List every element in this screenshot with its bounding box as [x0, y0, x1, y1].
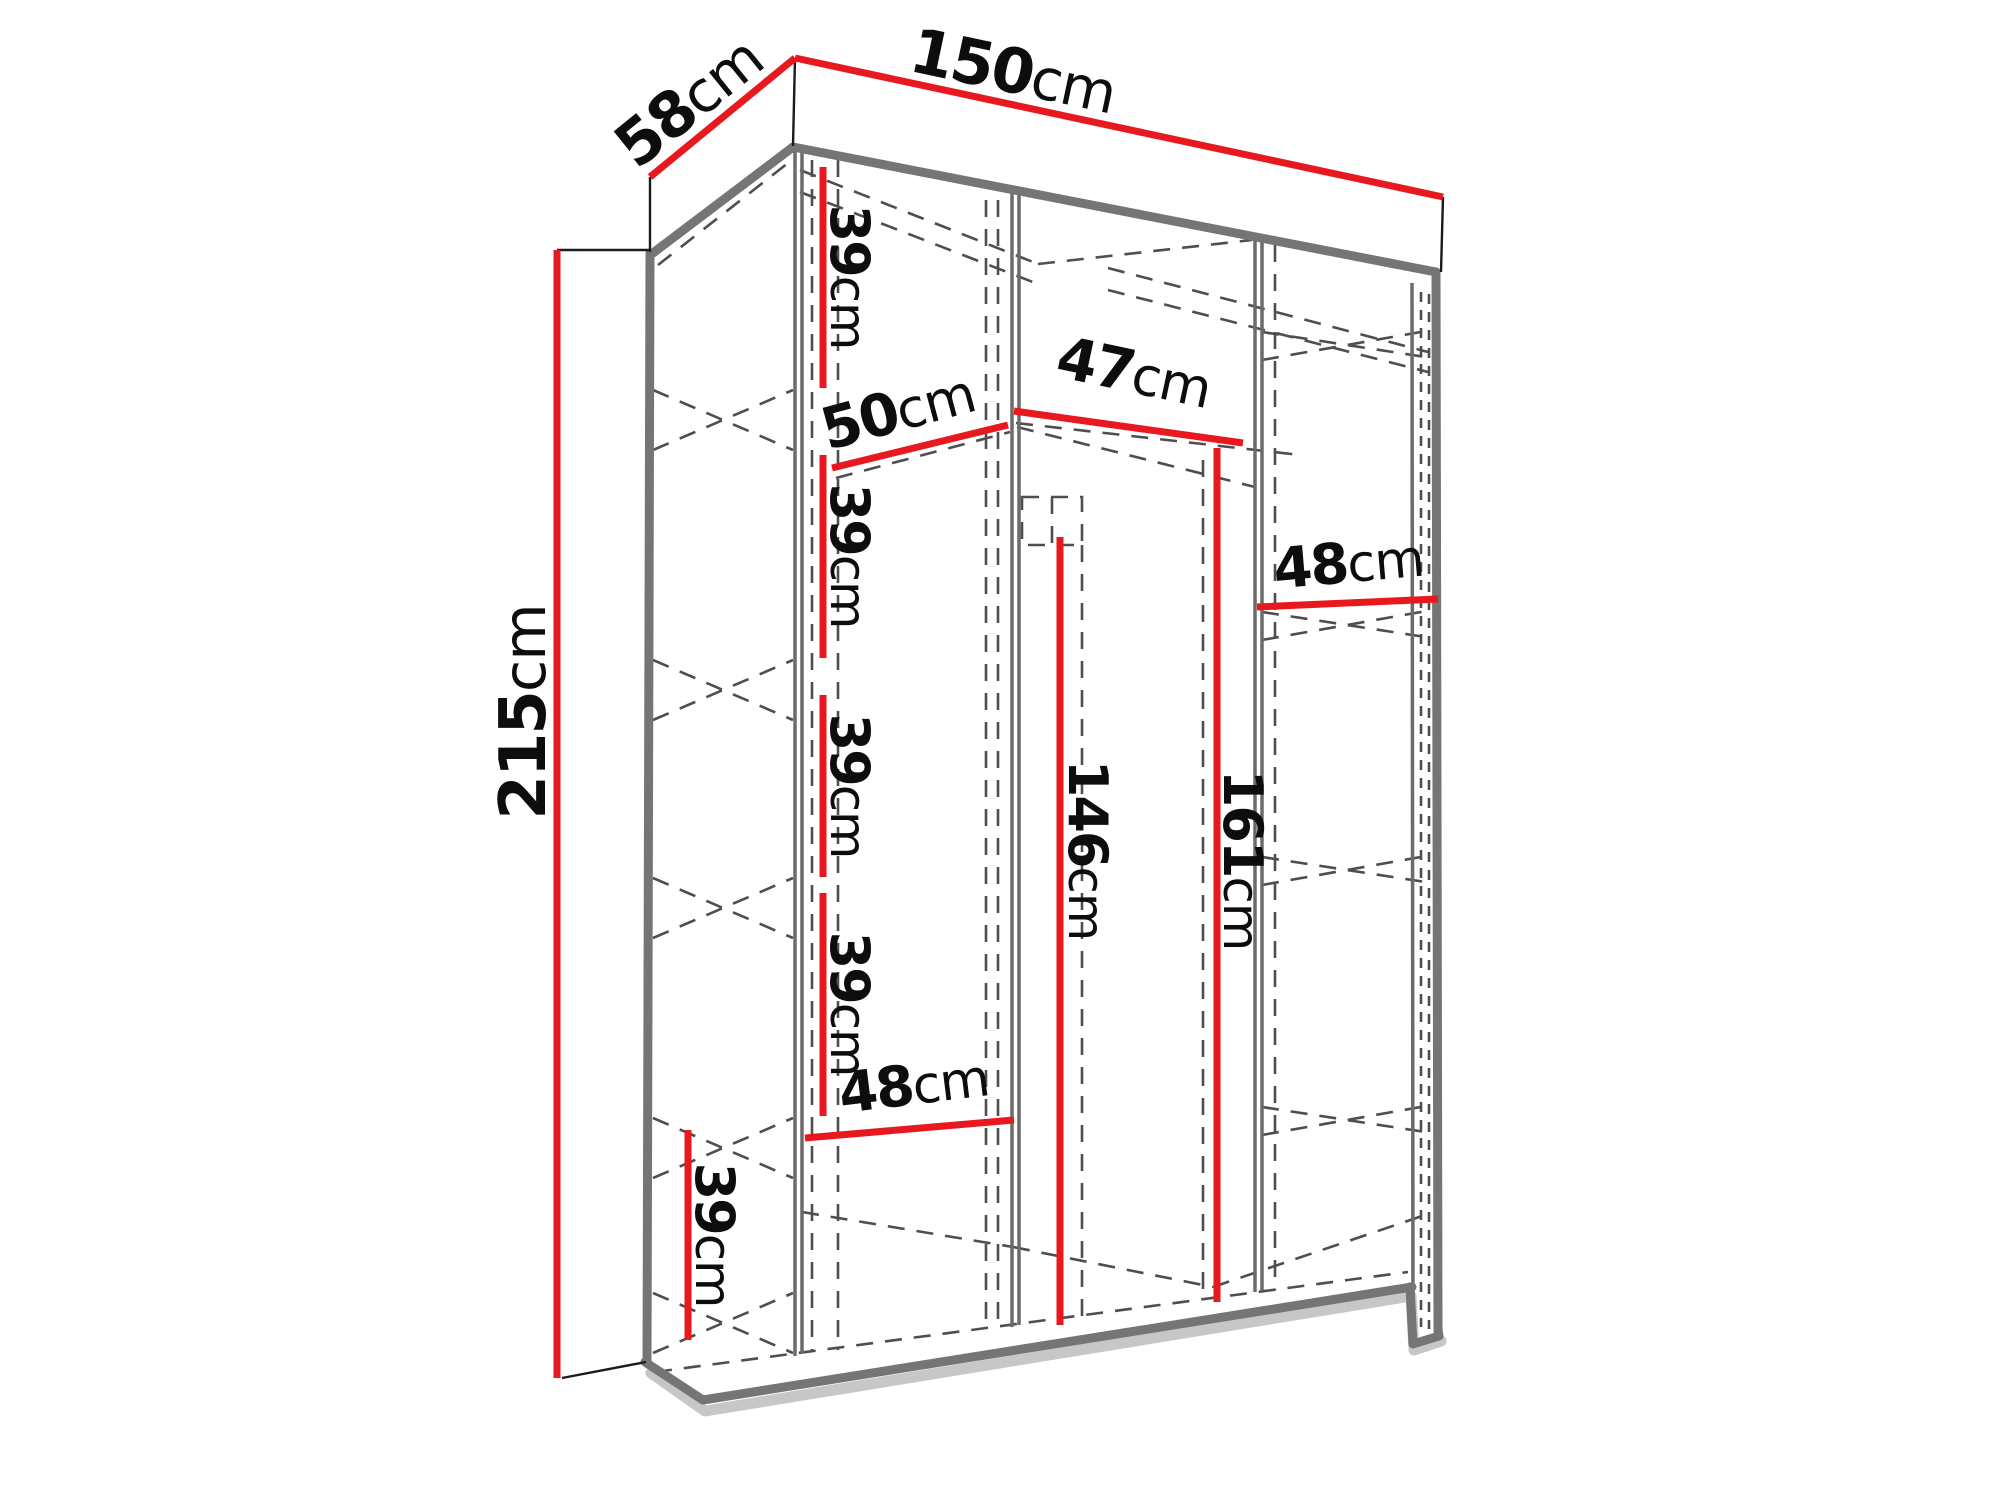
shelf-dashed-line	[1262, 612, 1432, 638]
dimension-labels: 58cm 150cm 215cm 39cm 39cm 39cm 39cm 39c…	[487, 14, 1426, 1308]
tick-line	[562, 1362, 646, 1378]
height-value: 215	[487, 692, 561, 820]
top-dashed-line	[658, 163, 788, 265]
shelf-gap-unit: cm	[819, 276, 877, 350]
cabinet-outline	[645, 147, 1439, 1400]
inner-height-161-label: 161cm	[1211, 770, 1274, 950]
inner-height-161-value: 161	[1211, 770, 1274, 877]
shelf-gap-value: 39	[818, 205, 881, 276]
shelf-gap-label: 39cm	[818, 714, 881, 859]
depth-label: 58cm	[601, 20, 777, 182]
shelf-dashed-line	[1262, 857, 1432, 883]
shelf-gap-value: 39	[818, 714, 881, 785]
inner-height-146-value: 146	[1056, 760, 1119, 867]
shelf-gap-label: 39cm	[818, 205, 881, 350]
left-side-top-edge	[653, 147, 793, 253]
width-label: 150cm	[904, 14, 1123, 129]
inner-width-48-bottom-value: 48	[835, 1054, 916, 1128]
inner-height-146-label: 146cm	[1056, 760, 1119, 940]
floor-dashed-line	[1213, 1215, 1425, 1287]
right-panel-inner-edge	[1412, 283, 1413, 1330]
shelf-gap-value: 39	[683, 1163, 746, 1234]
shelf-gap-unit: cm	[819, 555, 877, 629]
width-dimension-line	[795, 58, 1443, 197]
shelf-gap-label: 39cm	[818, 484, 881, 629]
shelf-gap-value: 39	[818, 484, 881, 555]
front-left-edge	[647, 253, 650, 1362]
inner-height-146-unit: cm	[1057, 867, 1115, 941]
height-unit: cm	[490, 604, 559, 692]
inner-width-48-right-label: 48cm	[1271, 525, 1427, 603]
shelf-dashed-line	[1262, 855, 1432, 885]
inner-height-161-unit: cm	[1212, 877, 1270, 951]
shelf-gap-label: 39cm	[683, 1163, 746, 1308]
inner-width-48-right-value: 48	[1271, 531, 1350, 602]
inner-width-47-unit: cm	[1126, 343, 1217, 421]
shelf-dashed-line	[1262, 1107, 1432, 1133]
shelf-dashed-line	[1262, 330, 1432, 360]
right-edge	[1436, 272, 1438, 1331]
inner-width-47-label: 47cm	[1051, 323, 1218, 422]
shelf-gap-unit: cm	[819, 785, 877, 859]
tick-line	[793, 58, 795, 146]
top-dashed-line	[1038, 240, 1252, 264]
inner-width-48-bottom-unit: cm	[909, 1048, 992, 1117]
top-front-edge	[793, 147, 1436, 272]
inner-width-48-bottom-line	[805, 1120, 1014, 1138]
floor-dashed-line	[802, 1212, 1013, 1247]
width-value: 150	[904, 14, 1040, 111]
wardrobe-dimension-diagram: 58cm 150cm 215cm 39cm 39cm 39cm 39cm 39c…	[0, 0, 2000, 1500]
shelf-gap-label: 39cm	[818, 932, 881, 1077]
floor-dashed-line	[1013, 1247, 1213, 1287]
diagram-canvas: 58cm 150cm 215cm 39cm 39cm 39cm 39cm 39c…	[0, 0, 2000, 1500]
shelf-gap-value: 39	[818, 932, 881, 1003]
shelf-dashed-line	[1262, 610, 1432, 640]
width-unit: cm	[1025, 45, 1122, 127]
tick-line	[1441, 197, 1443, 272]
inner-width-50-unit: cm	[889, 362, 982, 443]
inner-width-48-right-unit: cm	[1345, 529, 1426, 595]
interior-dashed-lines	[653, 160, 1432, 1372]
shelf-gap-unit: cm	[684, 1234, 742, 1308]
shelf-dashed-line	[1262, 1105, 1432, 1135]
inner-width-47-value: 47	[1051, 323, 1140, 405]
height-label: 215cm	[487, 604, 561, 819]
